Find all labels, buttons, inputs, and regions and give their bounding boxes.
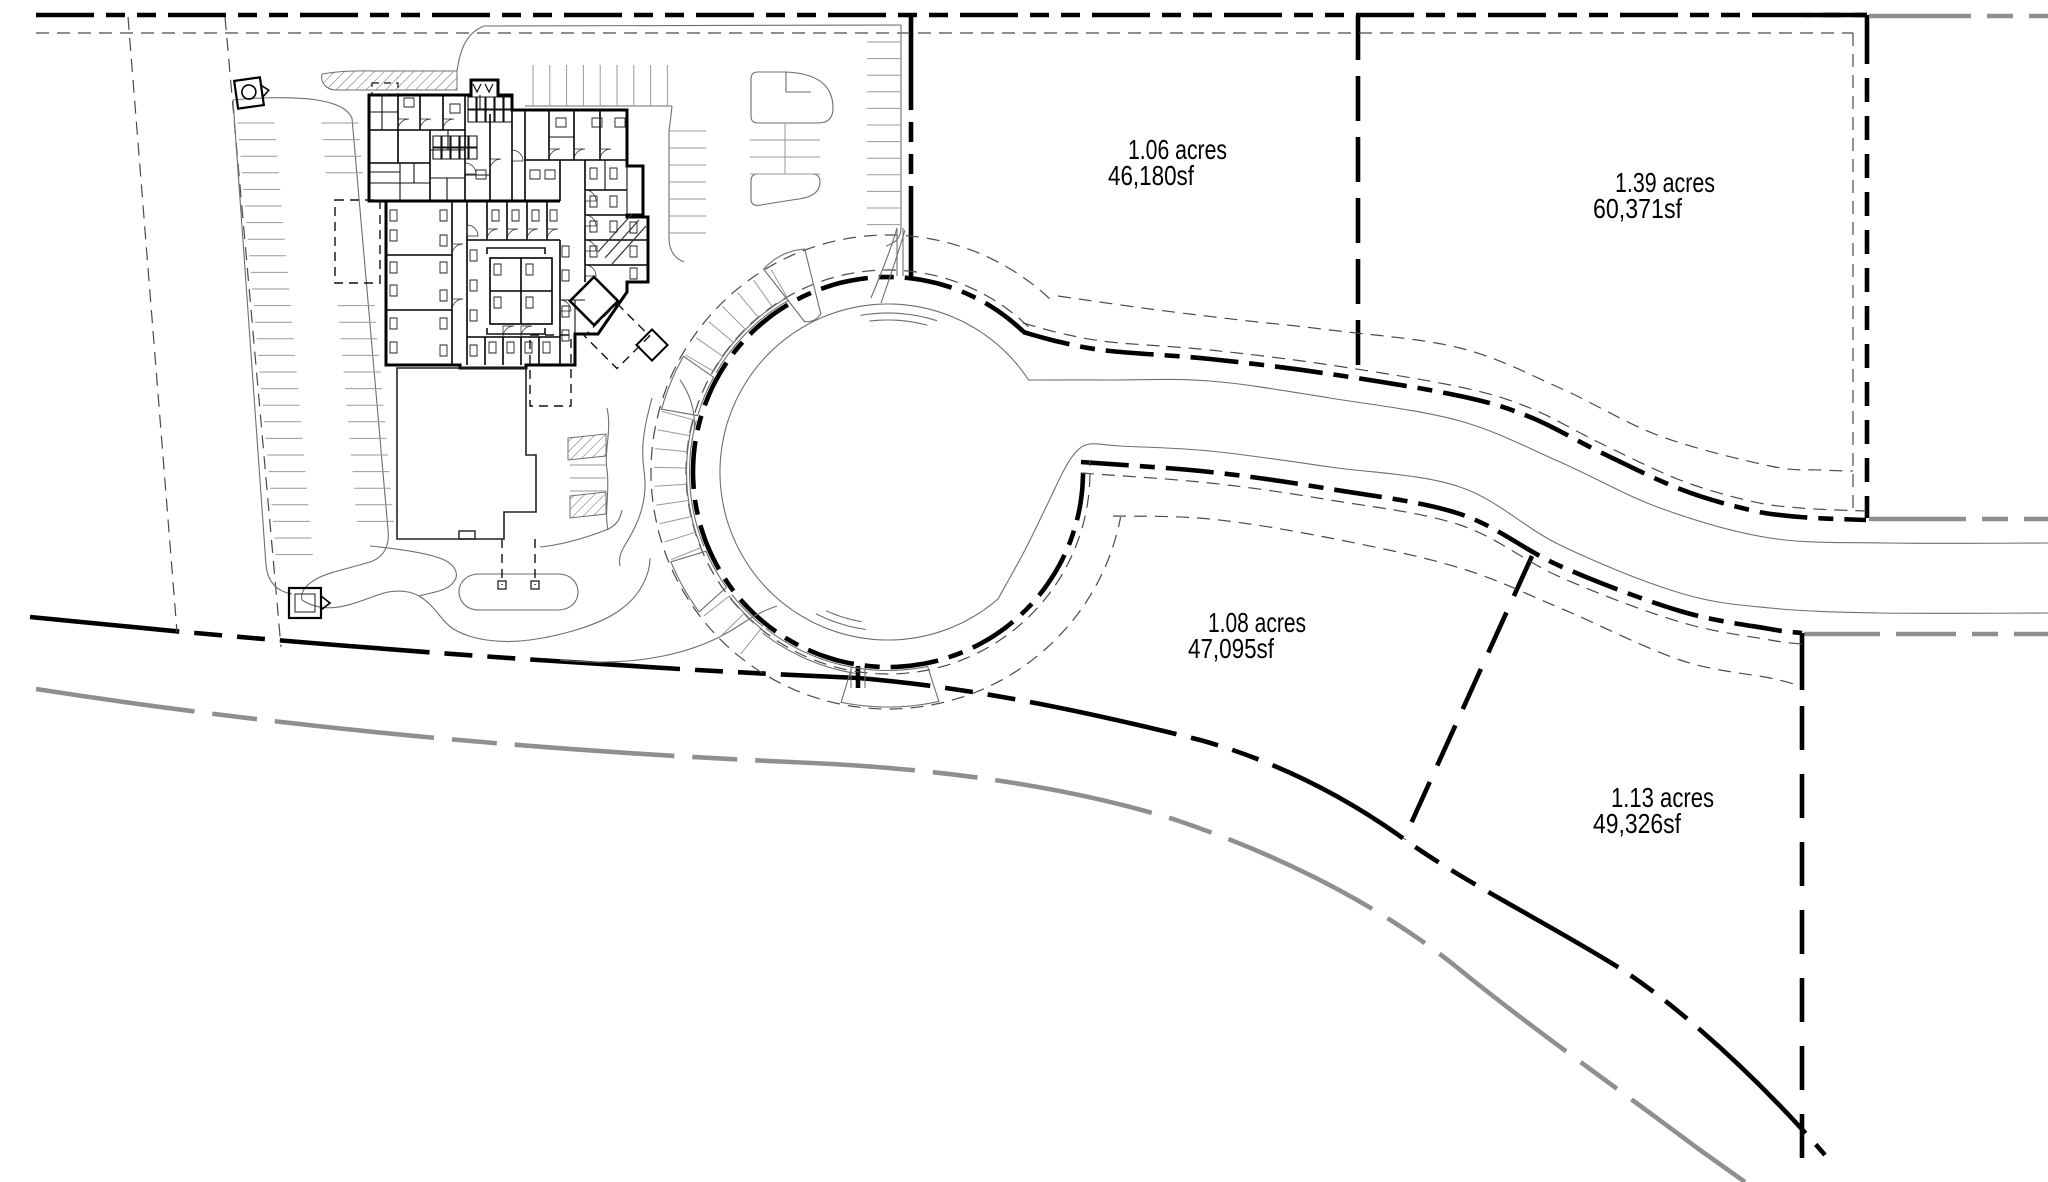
svg-text:46,180sf: 46,180sf bbox=[1108, 160, 1194, 191]
svg-text:47,095sf: 47,095sf bbox=[1188, 633, 1274, 664]
svg-text:49,326sf: 49,326sf bbox=[1593, 808, 1681, 839]
svg-text:60,371sf: 60,371sf bbox=[1593, 193, 1682, 224]
